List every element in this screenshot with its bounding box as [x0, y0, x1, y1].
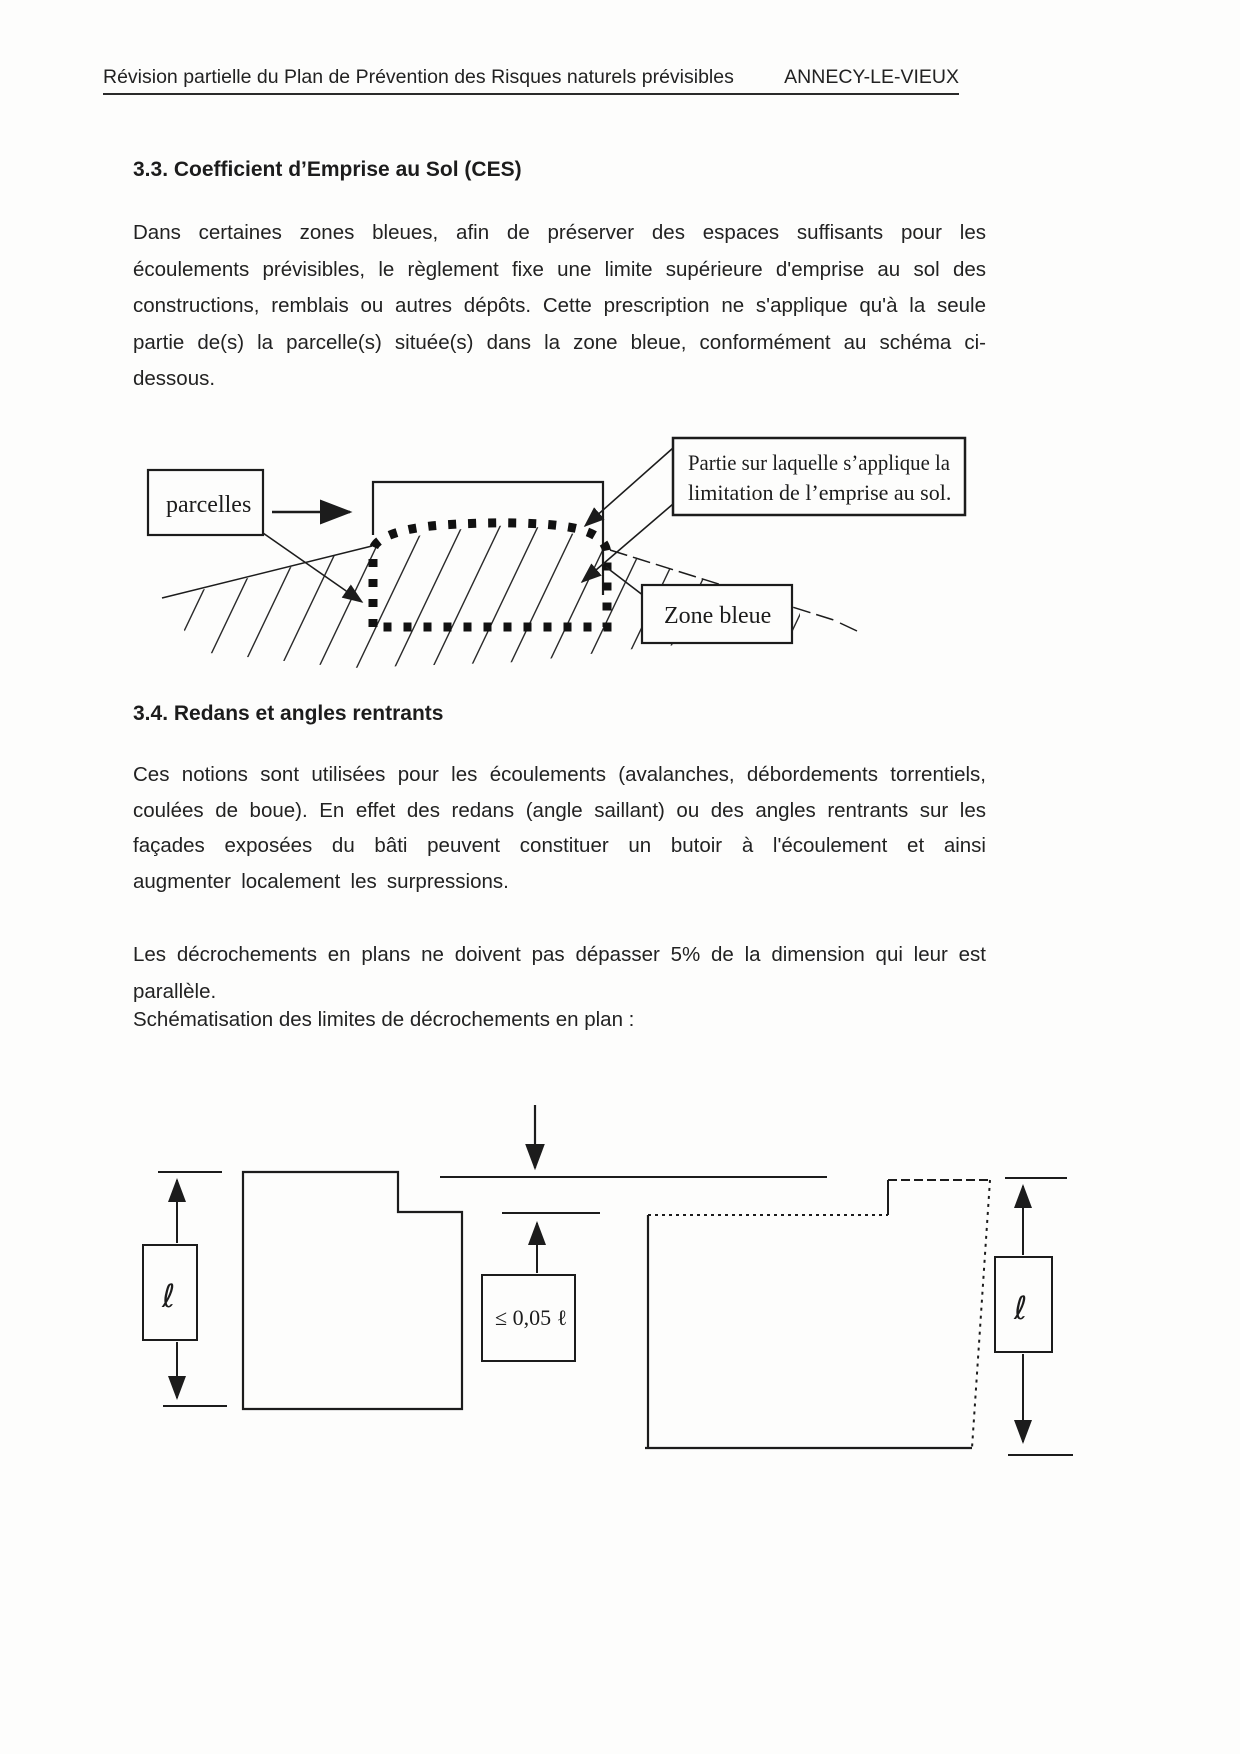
partie-label-line1: Partie sur laquelle s’applique la [688, 450, 950, 475]
emprise-dotted-boundary [373, 523, 607, 627]
parcel-outline [373, 482, 603, 595]
left-building-outline [243, 1172, 462, 1409]
right-dim-label: ℓ [1013, 1289, 1027, 1327]
section-3-3-paragraph: Dans certaines zones bleues, afin de pré… [133, 215, 986, 398]
zone-boundary-left-line [162, 546, 372, 598]
decrochements-diagram: ℓ ≤ 0,05 ℓ ℓ [100, 1080, 1140, 1475]
parcelles-leader-line [263, 533, 362, 602]
section-3-4-title: 3.4. Redans et angles rentrants [133, 702, 443, 726]
parcelles-label: parcelles [166, 492, 251, 518]
header-location: ANNECY-LE-VIEUX [784, 66, 959, 89]
zone-bleue-label: Zone bleue [664, 603, 771, 629]
section-3-4-paragraph-2: Les décrochements en plans ne doivent pa… [133, 936, 986, 1010]
zone-bleue-diagram: parcelles Partie sur laquelle s’applique… [100, 390, 1100, 690]
partie-label-line2: limitation de l’emprise au sol. [688, 480, 951, 505]
header-title: Révision partielle du Plan de Prévention… [103, 66, 734, 89]
left-dim-label: ℓ [161, 1277, 175, 1315]
page-header: Révision partielle du Plan de Prévention… [103, 66, 959, 95]
right-building-right-edge [972, 1180, 990, 1448]
plan-diagram-caption: Schématisation des limites de décrocheme… [133, 1008, 634, 1032]
limit-label: ≤ 0,05 ℓ [495, 1305, 567, 1330]
section-3-3-title: 3.3. Coefficient d’Emprise au Sol (CES) [133, 158, 522, 182]
zone-boundary-end-tick [840, 623, 857, 631]
document-page: Révision partielle du Plan de Prévention… [0, 0, 1240, 1754]
section-3-4-paragraph-1: Ces notions sont utilisées pour les écou… [133, 757, 986, 899]
zone-bleue-leader-line [606, 567, 644, 596]
